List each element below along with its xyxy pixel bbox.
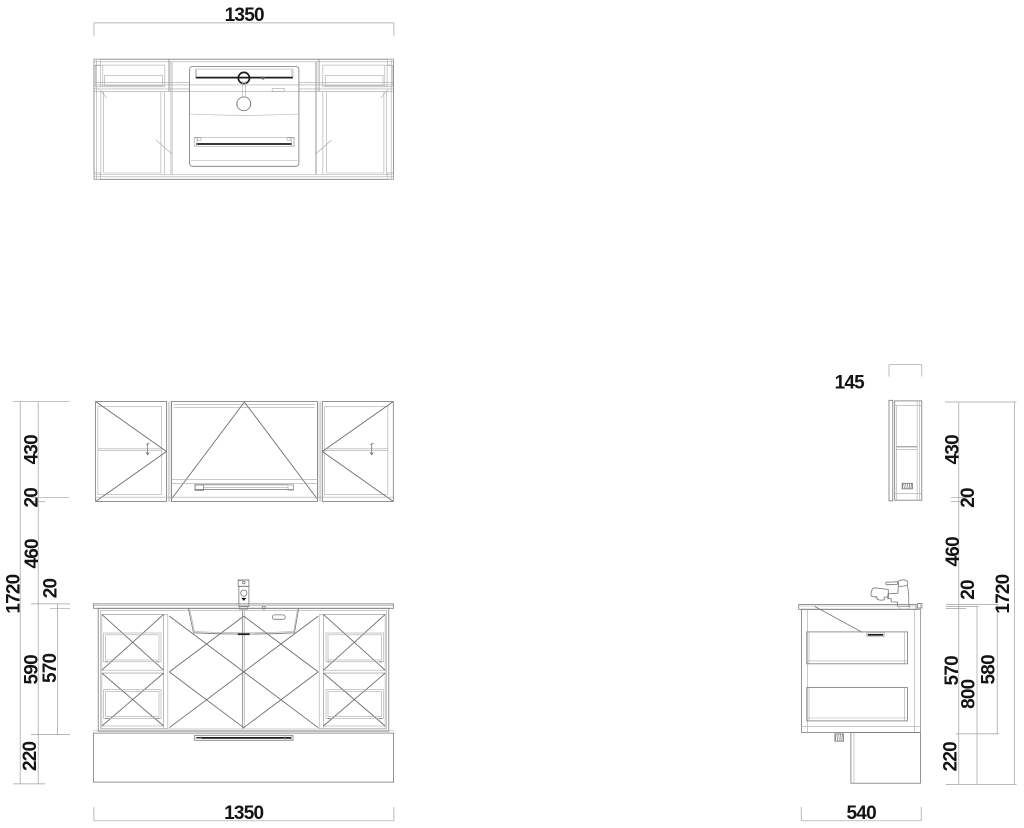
svg-text:430: 430 (943, 435, 964, 465)
svg-text:220: 220 (940, 742, 961, 772)
svg-text:460: 460 (22, 539, 43, 569)
svg-text:1350: 1350 (225, 5, 264, 26)
svg-text:540: 540 (847, 803, 877, 824)
svg-text:1720: 1720 (4, 574, 25, 613)
svg-text:430: 430 (22, 435, 43, 465)
svg-text:20: 20 (22, 488, 43, 508)
svg-text:145: 145 (835, 373, 866, 394)
svg-text:460: 460 (943, 537, 964, 567)
svg-text:800: 800 (958, 679, 979, 709)
svg-text:580: 580 (978, 655, 999, 685)
svg-text:20: 20 (958, 488, 979, 508)
svg-text:1720: 1720 (993, 574, 1014, 613)
svg-text:20: 20 (40, 579, 61, 599)
svg-text:20: 20 (958, 580, 979, 600)
svg-text:1350: 1350 (224, 803, 263, 824)
svg-text:570: 570 (40, 654, 61, 684)
svg-text:220: 220 (20, 742, 41, 772)
